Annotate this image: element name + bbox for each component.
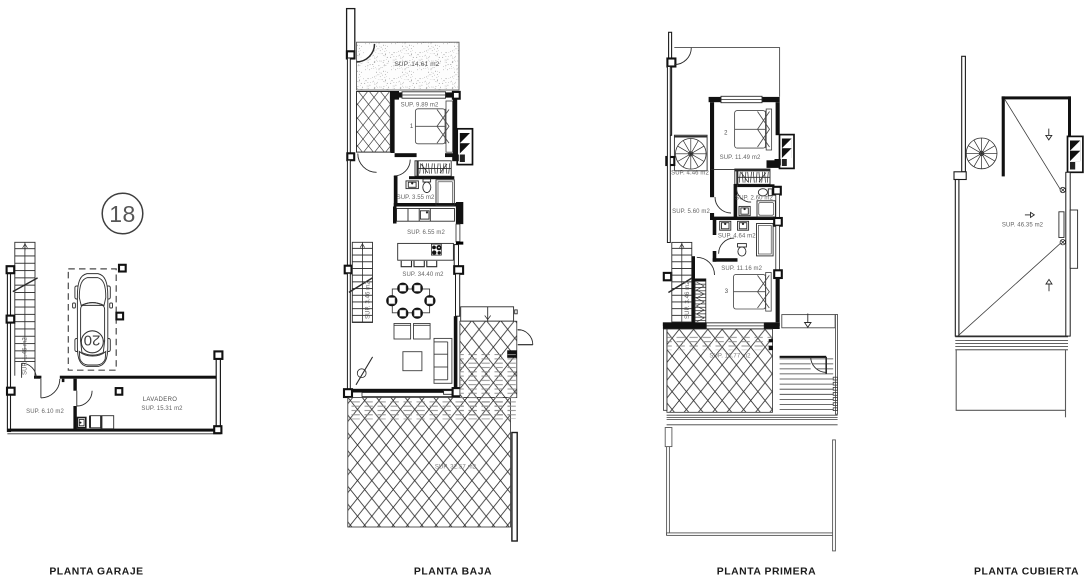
svg-text:SUP. 5.60 m2: SUP. 5.60 m2 [672, 209, 710, 215]
svg-text:SUP. 3.46 m2: SUP. 3.46 m2 [685, 281, 691, 319]
svg-text:SUP. 46.35 m2: SUP. 46.35 m2 [1002, 223, 1044, 229]
svg-text:LAVADERO: LAVADERO [143, 397, 178, 403]
svg-text:SUP. 2.60 m2: SUP. 2.60 m2 [735, 195, 773, 201]
svg-text:18: 18 [109, 201, 136, 227]
svg-text:SUP. 18.77 m2: SUP. 18.77 m2 [709, 353, 751, 359]
svg-text:SUP. 6.55 m2: SUP. 6.55 m2 [407, 230, 445, 236]
svg-text:SUP. 3.46 m2: SUP. 3.46 m2 [366, 281, 372, 319]
svg-text:SUP. 4.46 m2: SUP. 4.46 m2 [671, 171, 709, 177]
svg-text:SUP. 32.57 m2: SUP. 32.57 m2 [435, 464, 477, 470]
svg-text:PLANTA BAJA: PLANTA BAJA [414, 567, 492, 578]
svg-text:SUP. 9.89 m2: SUP. 9.89 m2 [401, 102, 439, 108]
svg-text:PLANTA CUBIERTA: PLANTA CUBIERTA [974, 567, 1079, 578]
svg-text:SUP. 4.64 m2: SUP. 4.64 m2 [718, 234, 756, 240]
svg-text:PLANTA PRIMERA: PLANTA PRIMERA [717, 567, 816, 578]
svg-text:SUP. 11.16 m2: SUP. 11.16 m2 [721, 266, 762, 272]
svg-text:SUP. 3.55 m2: SUP. 3.55 m2 [397, 195, 435, 201]
svg-text:SUP. 34.40 m2: SUP. 34.40 m2 [402, 272, 444, 278]
svg-text:SUP. 15.31 m2: SUP. 15.31 m2 [141, 406, 183, 412]
svg-text:20: 20 [84, 332, 101, 349]
svg-text:PLANTA GARAJE: PLANTA GARAJE [49, 567, 143, 578]
svg-text:SUP. 6.10 m2: SUP. 6.10 m2 [26, 409, 64, 415]
svg-text:SUP. 11.49 m2: SUP. 11.49 m2 [720, 155, 761, 161]
svg-text:SUP. 14.61 m2: SUP. 14.61 m2 [394, 61, 439, 68]
svg-text:SUP. 1.46 m2: SUP. 1.46 m2 [23, 337, 29, 375]
